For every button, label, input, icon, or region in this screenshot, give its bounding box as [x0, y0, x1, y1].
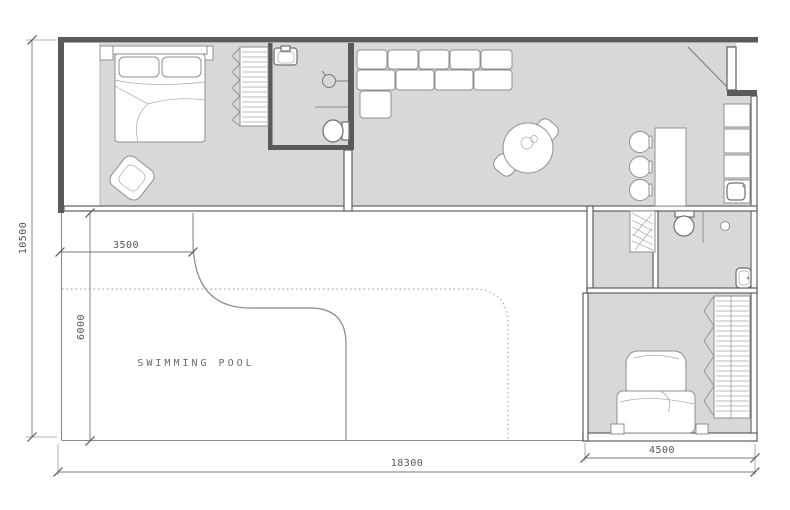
bar-stool-2: [630, 157, 651, 178]
kitchen-unit-3: [724, 155, 750, 178]
dimension-6000: 6000: [76, 209, 95, 446]
dim-6000-label: 6000: [76, 314, 87, 340]
closet-wardrobe: [630, 211, 655, 252]
toilet-1: [323, 120, 349, 142]
floor-plan-page: SWIMMING POOL: [0, 0, 790, 510]
dim-18300-label: 18300: [391, 458, 424, 469]
swimming-pool-label: SWIMMING POOL: [137, 358, 254, 369]
sofa-back-cushion: [419, 50, 449, 69]
bar-stool-2-back: [649, 161, 652, 173]
floor-plan-drawing: SWIMMING POOL: [0, 0, 790, 510]
bar-stool-3-back: [649, 184, 652, 196]
sofa-seat-cushion: [474, 70, 512, 90]
sink-2: [736, 268, 751, 288]
bar-stool-1: [630, 132, 651, 153]
bed-1-pillow-left: [119, 57, 159, 77]
dim-4500-label: 4500: [649, 445, 675, 456]
sink-1: [274, 46, 297, 65]
bed-1: [113, 46, 207, 142]
dimension-4500: 4500: [581, 443, 760, 463]
bedroom-2-top-wall: [587, 288, 757, 293]
pool-dotted-line: [62, 289, 508, 440]
sink-2-tap: [747, 277, 750, 280]
bar-stool-3: [630, 180, 651, 201]
sofa-seat-cushion: [357, 70, 395, 90]
sink-1-tap: [281, 46, 290, 51]
top-wall: [58, 37, 758, 43]
bed-2-bench-right: [696, 424, 708, 434]
middle-horizontal-wall: [64, 206, 757, 211]
bathroom-1-bottom-wall: [268, 145, 354, 150]
entrance-opening: [736, 43, 757, 96]
dimension-3500: 3500: [56, 214, 198, 257]
sofa-back-cushion: [388, 50, 418, 69]
bed-2-blanket: [617, 391, 695, 433]
left-wall: [58, 37, 64, 213]
kitchen-counter: [724, 104, 750, 203]
dining-table: [503, 123, 553, 173]
bed-1-pillow-right: [162, 57, 201, 77]
bar-counter: [655, 128, 686, 206]
sofa-back-cushion: [450, 50, 480, 69]
bar-area: [630, 128, 687, 206]
pool-edge-curve: [193, 213, 346, 440]
entrance-step-wall: [727, 90, 757, 96]
toilet-1-bowl: [323, 120, 343, 142]
pool-closet-wall: [587, 206, 593, 293]
shower-2-drain: [721, 222, 730, 231]
bed-1-headboard: [113, 46, 207, 54]
wardrobe-1-body: [240, 47, 268, 126]
sofa-seat-cushion: [435, 70, 473, 90]
sofa-chaise: [360, 91, 391, 118]
kitchen-sink-tap: [743, 185, 746, 188]
bed-2-bench-left: [611, 424, 624, 434]
toilet-2: [674, 211, 694, 236]
sofa-seat-cushion: [396, 70, 434, 90]
bedroom-2-bottom-wall: [583, 433, 757, 441]
toilet-2-bowl: [674, 216, 694, 236]
dimension-10500: 10500: [18, 36, 57, 442]
kitchen-unit-1: [724, 104, 750, 127]
bathroom-1-left-wall: [268, 43, 273, 150]
kitchen-sink: [727, 183, 745, 200]
dim-10500-label: 10500: [18, 222, 29, 255]
right-wall: [751, 96, 757, 441]
sofa-back-cushion: [357, 50, 387, 69]
dim-3500-label: 3500: [113, 240, 139, 251]
kitchen-unit-2: [724, 129, 750, 153]
passage-pillar-wall: [344, 150, 352, 211]
entrance-jamb-wall: [727, 47, 736, 90]
bar-stool-1-back: [649, 136, 652, 148]
sofa-back-cushion: [481, 50, 512, 69]
nightstand-left: [100, 46, 113, 60]
bedroom-2-left-wall: [583, 293, 588, 441]
wardrobe-2-body: [714, 296, 750, 418]
